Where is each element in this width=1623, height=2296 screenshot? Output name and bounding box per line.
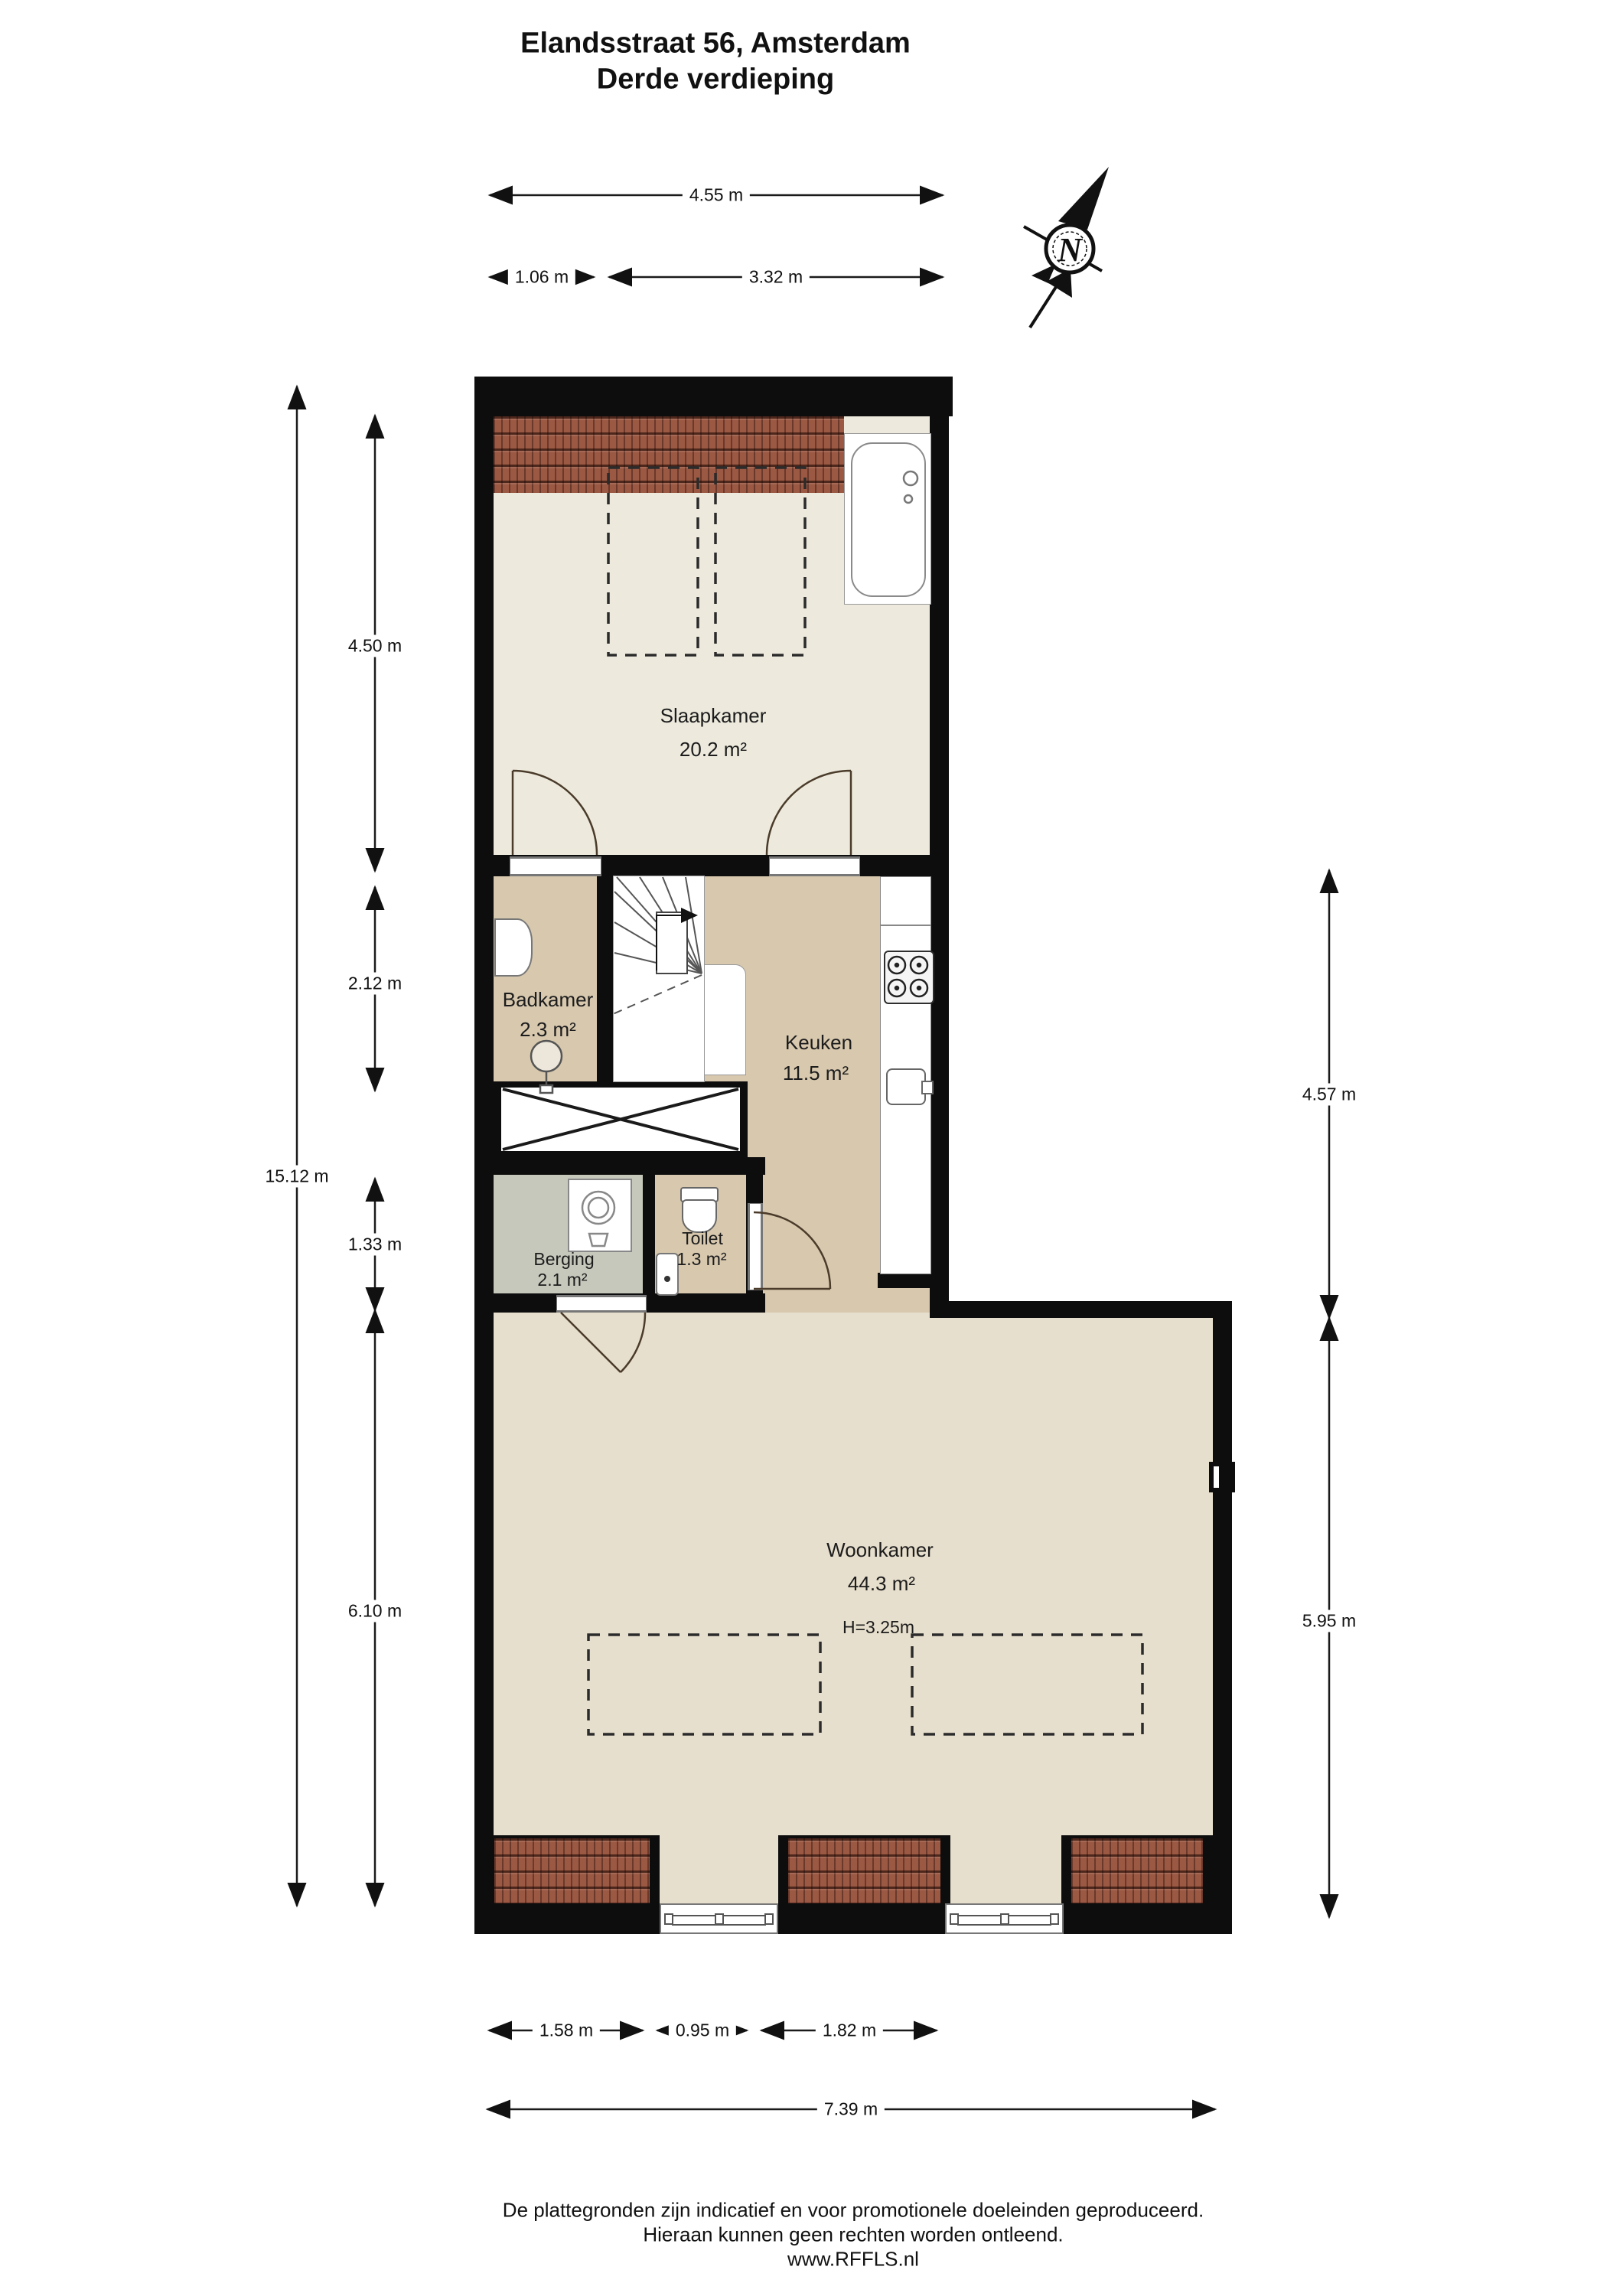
dim-left-2: 2.12 m xyxy=(341,973,409,995)
stair-cut-line xyxy=(613,975,702,1014)
dim-bottom-total: 7.39 m xyxy=(817,2099,885,2121)
dim-left-1: 4.50 m xyxy=(341,635,409,657)
room-label-keuken: Keuken xyxy=(785,1032,852,1055)
linework-layer: N xyxy=(0,0,1623,2296)
room-area-toilet: 1.3 m² xyxy=(676,1249,726,1269)
dim-left-4: 6.10 m xyxy=(341,1600,409,1623)
room-label-berging: Berging xyxy=(533,1249,594,1269)
door-swing-berging xyxy=(561,1313,645,1372)
dim-top-1: 1.06 m xyxy=(508,266,575,289)
room-area-keuken: 11.5 m² xyxy=(783,1062,849,1085)
room-area-badkamer: 2.3 m² xyxy=(520,1019,576,1042)
footer-disclaimer-1: De plattegronden zijn indicatief en voor… xyxy=(503,2199,1204,2223)
room-label-woonkamer: Woonkamer xyxy=(826,1539,934,1562)
dim-bottom-1: 1.58 m xyxy=(533,2020,600,2042)
dim-left-total: 15.12 m xyxy=(258,1166,335,1188)
dim-right-1: 4.57 m xyxy=(1295,1084,1363,1106)
dim-bottom-2: 0.95 m xyxy=(669,2020,736,2042)
dim-right-2: 5.95 m xyxy=(1295,1610,1363,1632)
dormer-outline-right xyxy=(715,468,805,655)
room-area-woonkamer: 44.3 m² xyxy=(848,1573,915,1596)
room-height-woonkamer: H=3.25m xyxy=(842,1617,914,1637)
skylight-outline-left xyxy=(588,1635,820,1734)
room-area-berging: 2.1 m² xyxy=(537,1270,587,1290)
bathtub-faucet xyxy=(904,471,917,503)
footer-website: www.RFFLS.nl xyxy=(787,2248,919,2272)
void-x-icon xyxy=(503,1089,738,1150)
shower-icon xyxy=(531,1041,562,1093)
door-swing-keuken xyxy=(767,771,851,855)
floorplan-page: Elandsstraat 56, Amsterdam Derde verdiep… xyxy=(0,0,1623,2296)
dim-left-3: 1.33 m xyxy=(341,1234,409,1256)
dim-top-total: 4.55 m xyxy=(683,184,750,207)
footer-disclaimer-2: Hieraan kunnen geen rechten worden ontle… xyxy=(643,2223,1063,2247)
stair-direction-arrow xyxy=(681,908,698,923)
compass-icon: N xyxy=(1024,167,1109,328)
dim-top-2: 3.32 m xyxy=(742,266,810,289)
dormer-outline-left xyxy=(608,468,698,655)
compass-north-label: N xyxy=(1057,231,1084,269)
room-area-slaapkamer: 20.2 m² xyxy=(680,739,747,762)
staircase xyxy=(613,877,702,1014)
room-label-toilet: Toilet xyxy=(682,1228,723,1248)
stove-burners xyxy=(888,957,927,996)
door-swing-badkamer xyxy=(513,771,597,855)
dim-bottom-3: 1.82 m xyxy=(816,2020,883,2042)
washing-machine-icon xyxy=(582,1192,614,1246)
room-label-slaapkamer: Slaapkamer xyxy=(660,705,767,728)
door-swing-toilet xyxy=(754,1212,830,1289)
skylight-outline-right xyxy=(912,1635,1142,1734)
room-label-badkamer: Badkamer xyxy=(503,989,594,1012)
